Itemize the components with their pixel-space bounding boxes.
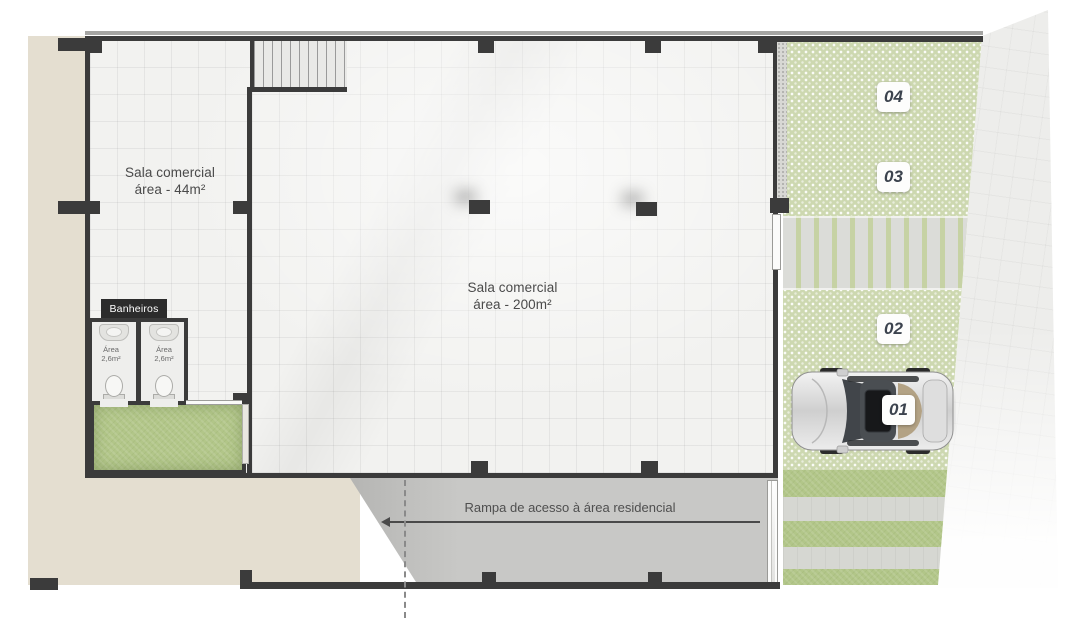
column	[645, 41, 661, 53]
bathrooms-title: Banheiros	[101, 299, 167, 318]
bottom-boundary-wall	[240, 582, 780, 589]
room-200-name: Sala comercial	[430, 280, 595, 297]
column	[478, 41, 494, 53]
bathroom-divider-wall	[136, 318, 141, 405]
parking-badge-03: 03	[877, 162, 910, 192]
ramp-label: Rampa de acesso à área residencial	[420, 500, 720, 515]
column	[233, 201, 252, 214]
column	[641, 461, 658, 473]
parking-badge-02: 02	[877, 314, 910, 344]
room-44-label: Sala comercial área - 44m²	[100, 165, 240, 199]
ramp-arrow-head-icon	[381, 517, 390, 527]
parking-top-wall	[778, 36, 983, 42]
room-44-name: Sala comercial	[100, 165, 240, 182]
parking-badge-01: 01	[882, 395, 915, 425]
garden	[90, 401, 246, 474]
toilet-icon	[105, 375, 123, 397]
sink-icon	[149, 324, 179, 341]
side-entrance-door	[772, 214, 781, 270]
pedestrian-walkway-strip	[783, 216, 983, 290]
column	[758, 41, 773, 53]
wall-stub	[482, 572, 496, 584]
wall-stub	[30, 578, 58, 590]
garden-door-strip	[242, 404, 249, 464]
column	[85, 201, 100, 214]
exterior-wall-stub	[58, 38, 88, 51]
stall-area-label: Área 2,6m²	[147, 346, 181, 363]
left-setback-ground	[28, 36, 85, 585]
ramp-corridor	[350, 478, 778, 586]
column	[471, 461, 488, 473]
sink-icon	[99, 324, 129, 341]
floor-plan: 04 03 02 01 Rampa de acesso à área resid…	[0, 0, 1080, 630]
ramp-dashed-projection-line	[404, 480, 406, 618]
ramp-gate	[767, 480, 778, 584]
stair-wall	[247, 87, 347, 92]
ramp-arrow-line	[390, 521, 760, 523]
toilet-icon	[155, 375, 173, 397]
room-44-area: área - 44m²	[100, 182, 240, 199]
room-200-label: Sala comercial área - 200m²	[430, 280, 595, 314]
staircase	[250, 41, 347, 88]
window-strip	[186, 400, 242, 405]
column	[770, 198, 789, 213]
car	[790, 367, 956, 455]
parking-badge-04: 04	[877, 82, 910, 112]
exterior-wall-stub	[58, 201, 88, 214]
room-200-area: área - 200m²	[430, 297, 595, 314]
bathroom-door-opening	[150, 399, 178, 407]
free-standing-column	[636, 202, 657, 216]
stall-area-label: Área 2,6m²	[94, 346, 128, 363]
wall-stub	[240, 570, 252, 586]
column	[86, 41, 102, 53]
bottom-left-plaza-ground	[85, 478, 360, 585]
outer-wall-edge	[85, 31, 983, 35]
wall-stub	[648, 572, 662, 584]
free-standing-column	[469, 200, 490, 214]
bathroom-door-opening	[100, 399, 128, 407]
gravel-strip	[775, 42, 787, 200]
